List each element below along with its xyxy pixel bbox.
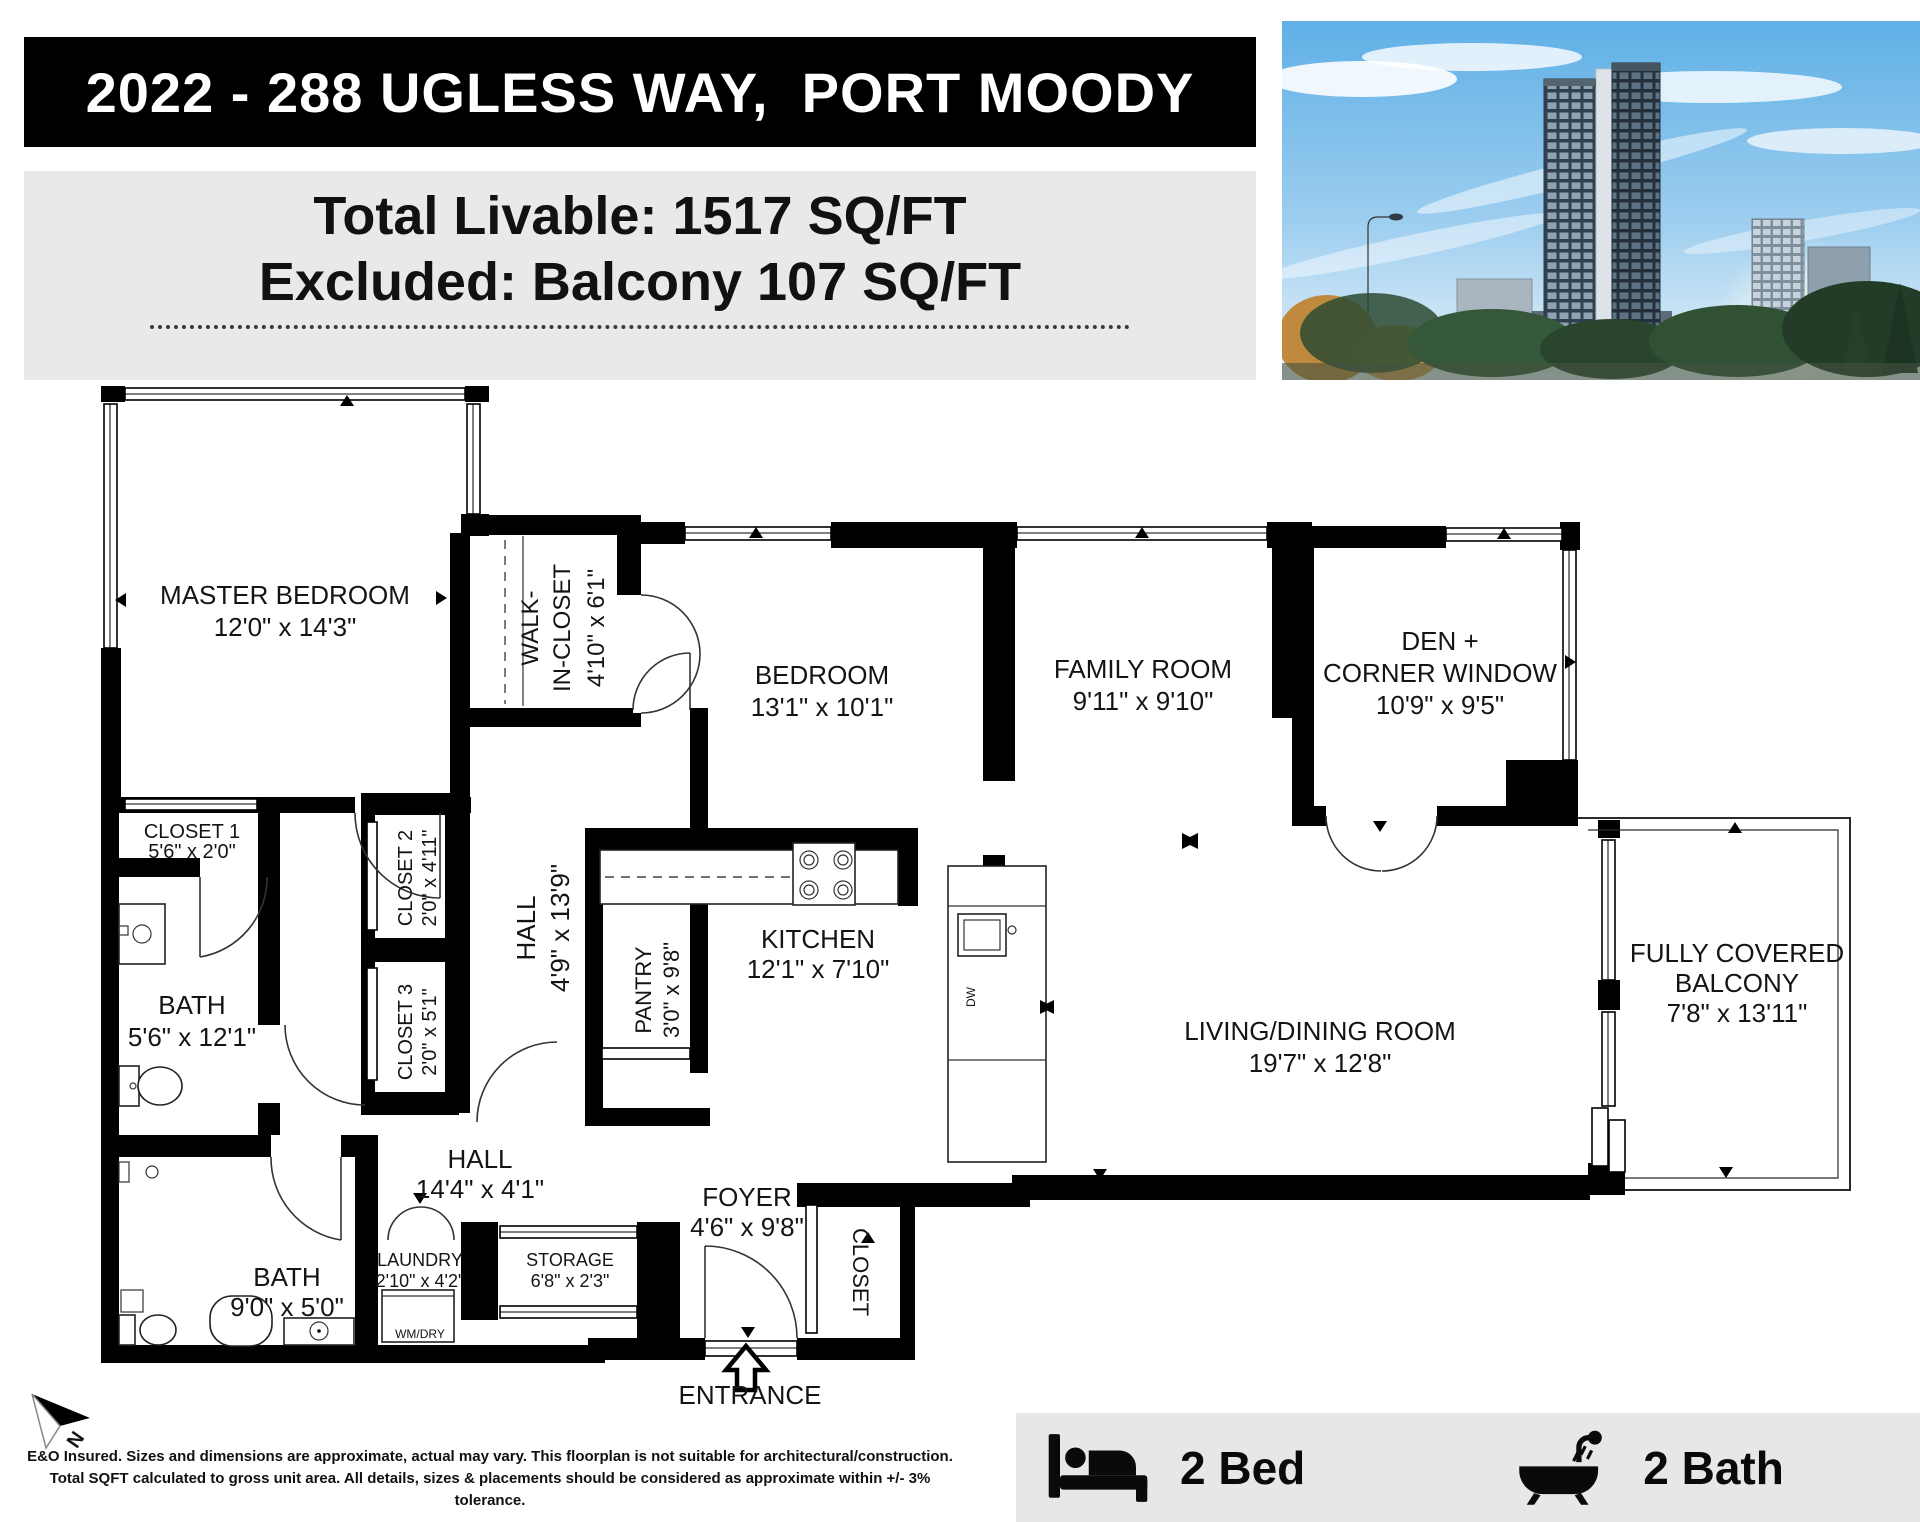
label-foyer-dims: 4'6" x 9'8"	[690, 1212, 804, 1242]
label-living-dining-dims: 19'7" x 12'8"	[1249, 1048, 1392, 1078]
label-pantry-dims: 3'0" x 9'8"	[659, 942, 684, 1038]
label-balcony-dims: 7'8" x 13'11"	[1667, 998, 1808, 1028]
label-kitchen-dims: 12'1" x 7'10"	[747, 954, 890, 984]
label-den-1: DEN +	[1401, 626, 1478, 656]
bed-bath-summary-bar: 2 Bed 2 Bath	[1016, 1413, 1920, 1522]
label-bath-main-dims: 9'0" x 5'0"	[230, 1292, 344, 1322]
label-bath-ensuite-dims: 5'6" x 12'1"	[128, 1022, 256, 1052]
label-bedroom-dims: 13'1" x 10'1"	[751, 692, 894, 722]
label-living-dining: LIVING/DINING ROOM	[1184, 1016, 1456, 1046]
label-storage-dims: 6'8" x 2'3"	[531, 1271, 610, 1291]
bath-icon	[1515, 1430, 1613, 1505]
bed-icon	[1046, 1430, 1150, 1506]
label-pantry: PANTRY	[631, 946, 656, 1034]
disclaimer-line2: Total SQFT calculated to gross unit area…	[20, 1468, 960, 1512]
label-laundry: LAUNDRY	[377, 1250, 463, 1270]
label-dw: DW	[964, 986, 978, 1007]
label-closet3: CLOSET 3	[395, 984, 417, 1080]
label-closet1: CLOSET 1	[144, 821, 240, 843]
label-wic-1: WALK-	[517, 590, 544, 665]
label-kitchen: KITCHEN	[761, 924, 875, 954]
label-wic-dims: 4'10" x 6'1"	[583, 569, 610, 687]
label-master-bedroom: MASTER BEDROOM	[160, 580, 410, 610]
label-bath-main: BATH	[253, 1262, 320, 1292]
bath-summary: 2 Bath	[1515, 1430, 1784, 1505]
label-bath-ensuite: BATH	[158, 990, 225, 1020]
bath-count: 2 Bath	[1643, 1441, 1784, 1495]
label-family-room-dims: 9'11" x 9'10"	[1073, 686, 1214, 716]
label-laundry-dims: 2'10" x 4'2"	[376, 1271, 465, 1291]
label-balcony-2: BALCONY	[1675, 968, 1799, 998]
label-entrance: ENTRANCE	[678, 1380, 821, 1410]
label-den-dims: 10'9" x 9'5"	[1376, 690, 1504, 720]
disclaimer-line1: E&O Insured. Sizes and dimensions are ap…	[20, 1446, 960, 1468]
disclaimer: E&O Insured. Sizes and dimensions are ap…	[20, 1446, 960, 1512]
label-closet2-dims: 2'0" x 4'11"	[419, 829, 441, 926]
label-hall-upper-dims: 4'9" x 13'9"	[545, 864, 575, 992]
label-hall-lower: HALL	[447, 1144, 512, 1174]
label-family-room: FAMILY ROOM	[1054, 654, 1232, 684]
label-den-2: CORNER WINDOW	[1323, 658, 1557, 688]
label-foyer: FOYER	[702, 1182, 792, 1212]
label-closet2: CLOSET 2	[395, 830, 417, 926]
label-closet-foyer: CLOSET	[848, 1228, 873, 1316]
label-closet1-dims: 5'6" x 2'0"	[148, 841, 235, 863]
label-bedroom: BEDROOM	[755, 660, 889, 690]
label-master-bedroom-dims: 12'0" x 14'3"	[214, 612, 357, 642]
bed-summary: 2 Bed	[1046, 1430, 1305, 1506]
label-closet3-dims: 2'0" x 5'1"	[419, 988, 441, 1075]
floor-plan: N MASTER BEDROOM 12'0" x 14'3" WALK- IN-…	[0, 0, 1920, 1522]
label-storage: STORAGE	[526, 1250, 614, 1270]
label-wic-2: IN-CLOSET	[549, 564, 576, 692]
label-balcony-1: FULLY COVERED	[1630, 938, 1844, 968]
bed-count: 2 Bed	[1180, 1441, 1305, 1495]
label-wm-dry: WM/DRY	[395, 1327, 445, 1341]
label-hall-upper: HALL	[511, 895, 541, 960]
label-hall-lower-dims: 14'4" x 4'1"	[416, 1174, 544, 1204]
north-compass-icon: N	[32, 1394, 90, 1452]
